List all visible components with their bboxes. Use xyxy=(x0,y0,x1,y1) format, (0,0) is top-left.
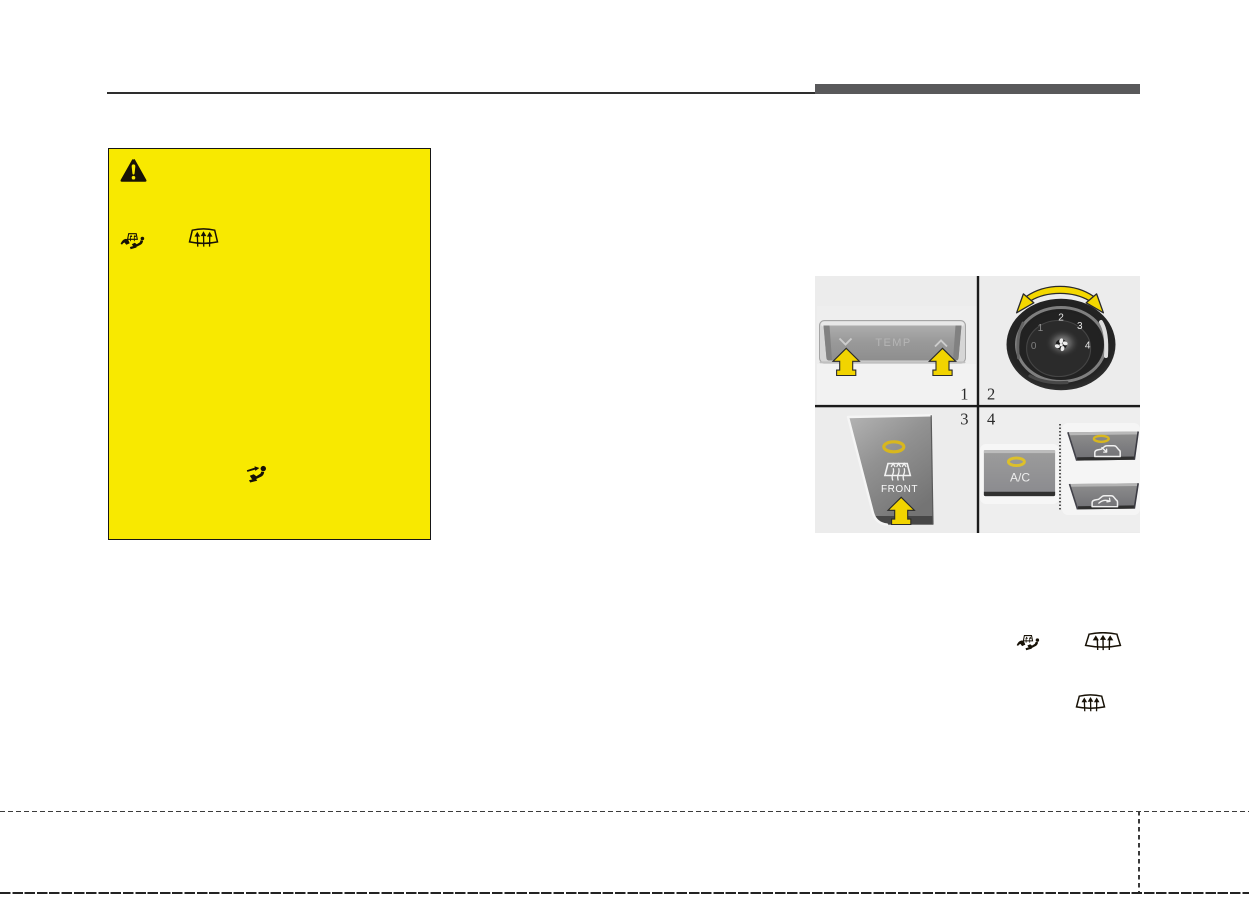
svg-text:2: 2 xyxy=(987,385,995,404)
svg-text:0: 0 xyxy=(1031,341,1037,352)
svg-text:FRONT: FRONT xyxy=(881,484,918,495)
svg-text:1: 1 xyxy=(960,385,968,404)
svg-text:3: 3 xyxy=(960,410,968,429)
svg-text:2: 2 xyxy=(1058,313,1064,324)
svg-text:TEMP: TEMP xyxy=(875,337,911,349)
svg-text:4: 4 xyxy=(1085,341,1091,352)
svg-text:A/C: A/C xyxy=(1010,470,1030,484)
svg-text:4: 4 xyxy=(987,410,995,429)
svg-text:3: 3 xyxy=(1077,321,1083,332)
svg-text:1: 1 xyxy=(1038,323,1044,334)
